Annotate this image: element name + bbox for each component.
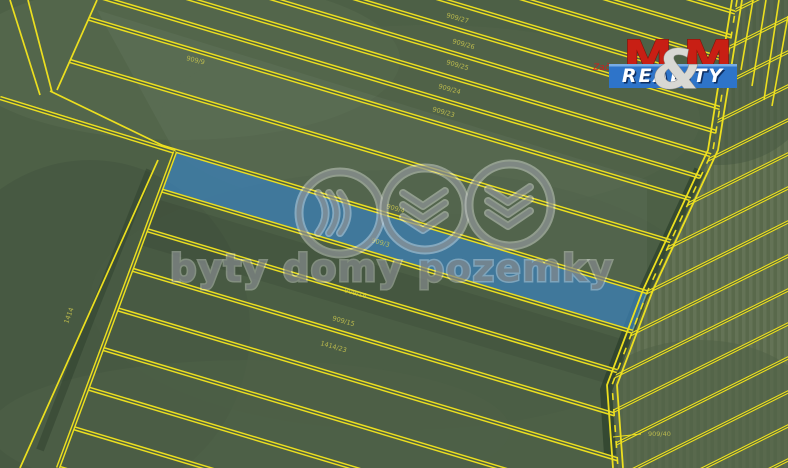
cadastral-map[interactable]: 909/9909/27909/26909/25909/24909/23909/4… — [0, 0, 788, 468]
watermark-text: byty domy pozemky — [170, 247, 614, 290]
real-estate-map-screenshot: 909/9909/27909/26909/25909/24909/23909/4… — [0, 0, 788, 468]
brand-logo-ampersand: & — [653, 38, 700, 101]
parcel-number-label: 909/40 — [648, 430, 671, 438]
red-map-label: Zač — [592, 62, 611, 73]
